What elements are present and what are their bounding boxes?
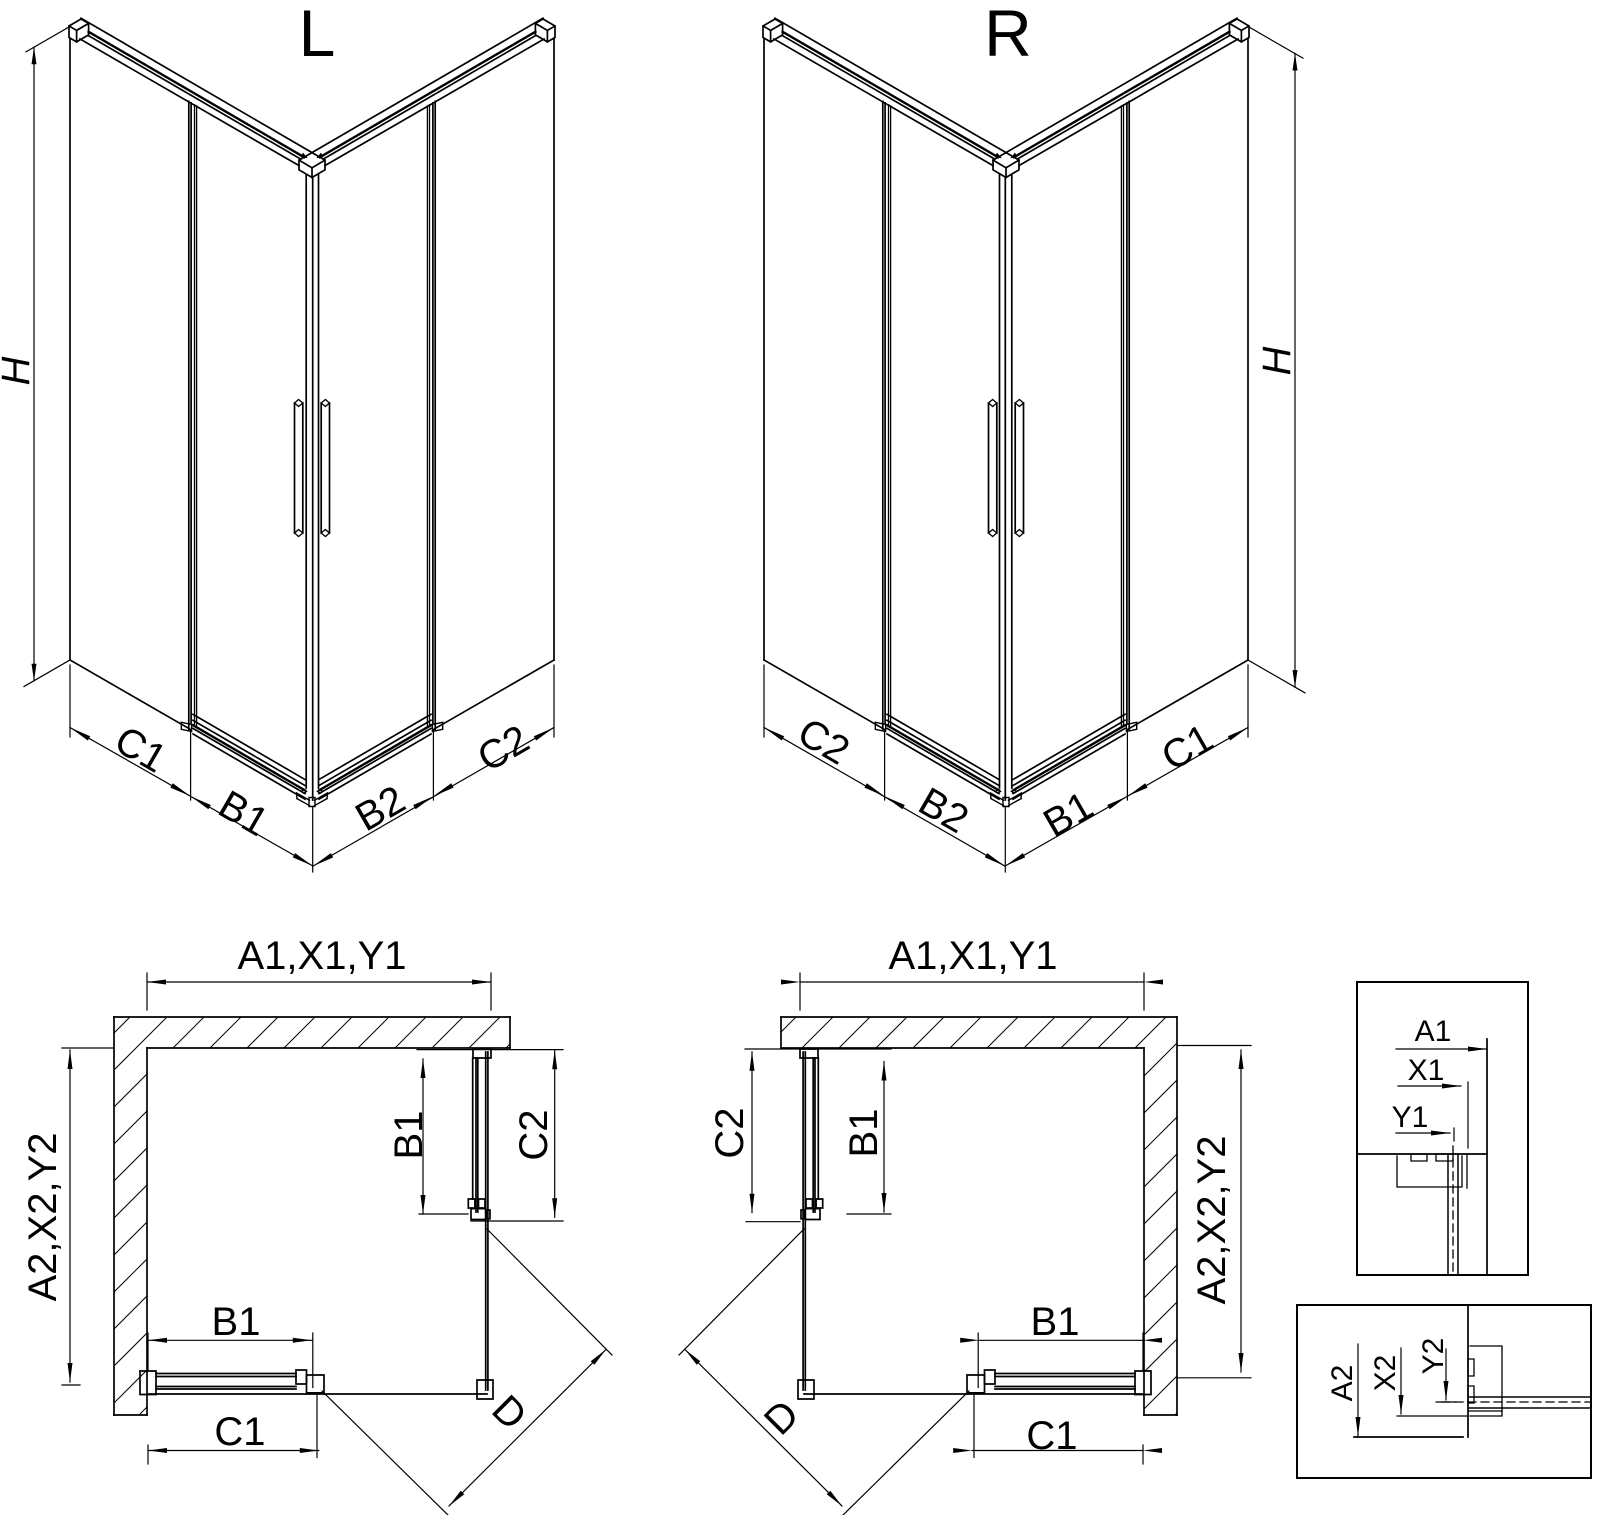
svg-text:C1: C1 bbox=[1026, 1414, 1077, 1458]
svg-text:Y2: Y2 bbox=[1417, 1338, 1450, 1375]
svg-text:A2,X2,Y2: A2,X2,Y2 bbox=[1190, 1135, 1234, 1304]
svg-text:X1: X1 bbox=[1408, 1054, 1445, 1087]
svg-text:C1: C1 bbox=[214, 1410, 265, 1454]
svg-text:L: L bbox=[299, 0, 336, 70]
svg-text:A1: A1 bbox=[1415, 1015, 1452, 1048]
svg-text:H: H bbox=[1255, 346, 1299, 375]
svg-text:A1,X1,Y1: A1,X1,Y1 bbox=[888, 934, 1057, 978]
svg-text:Y1: Y1 bbox=[1392, 1101, 1429, 1134]
svg-text:A2: A2 bbox=[1326, 1365, 1359, 1402]
svg-text:R: R bbox=[984, 0, 1032, 70]
svg-text:B1: B1 bbox=[842, 1109, 886, 1158]
svg-text:B1: B1 bbox=[387, 1111, 431, 1160]
svg-text:C2: C2 bbox=[708, 1107, 752, 1158]
svg-text:B1: B1 bbox=[212, 1300, 261, 1344]
svg-text:B1: B1 bbox=[1031, 1300, 1080, 1344]
svg-text:A1,X1,Y1: A1,X1,Y1 bbox=[237, 934, 406, 978]
svg-text:C2: C2 bbox=[512, 1109, 556, 1160]
svg-text:X2: X2 bbox=[1369, 1355, 1402, 1392]
svg-text:A2,X2,Y2: A2,X2,Y2 bbox=[21, 1132, 65, 1301]
svg-text:H: H bbox=[0, 356, 38, 385]
